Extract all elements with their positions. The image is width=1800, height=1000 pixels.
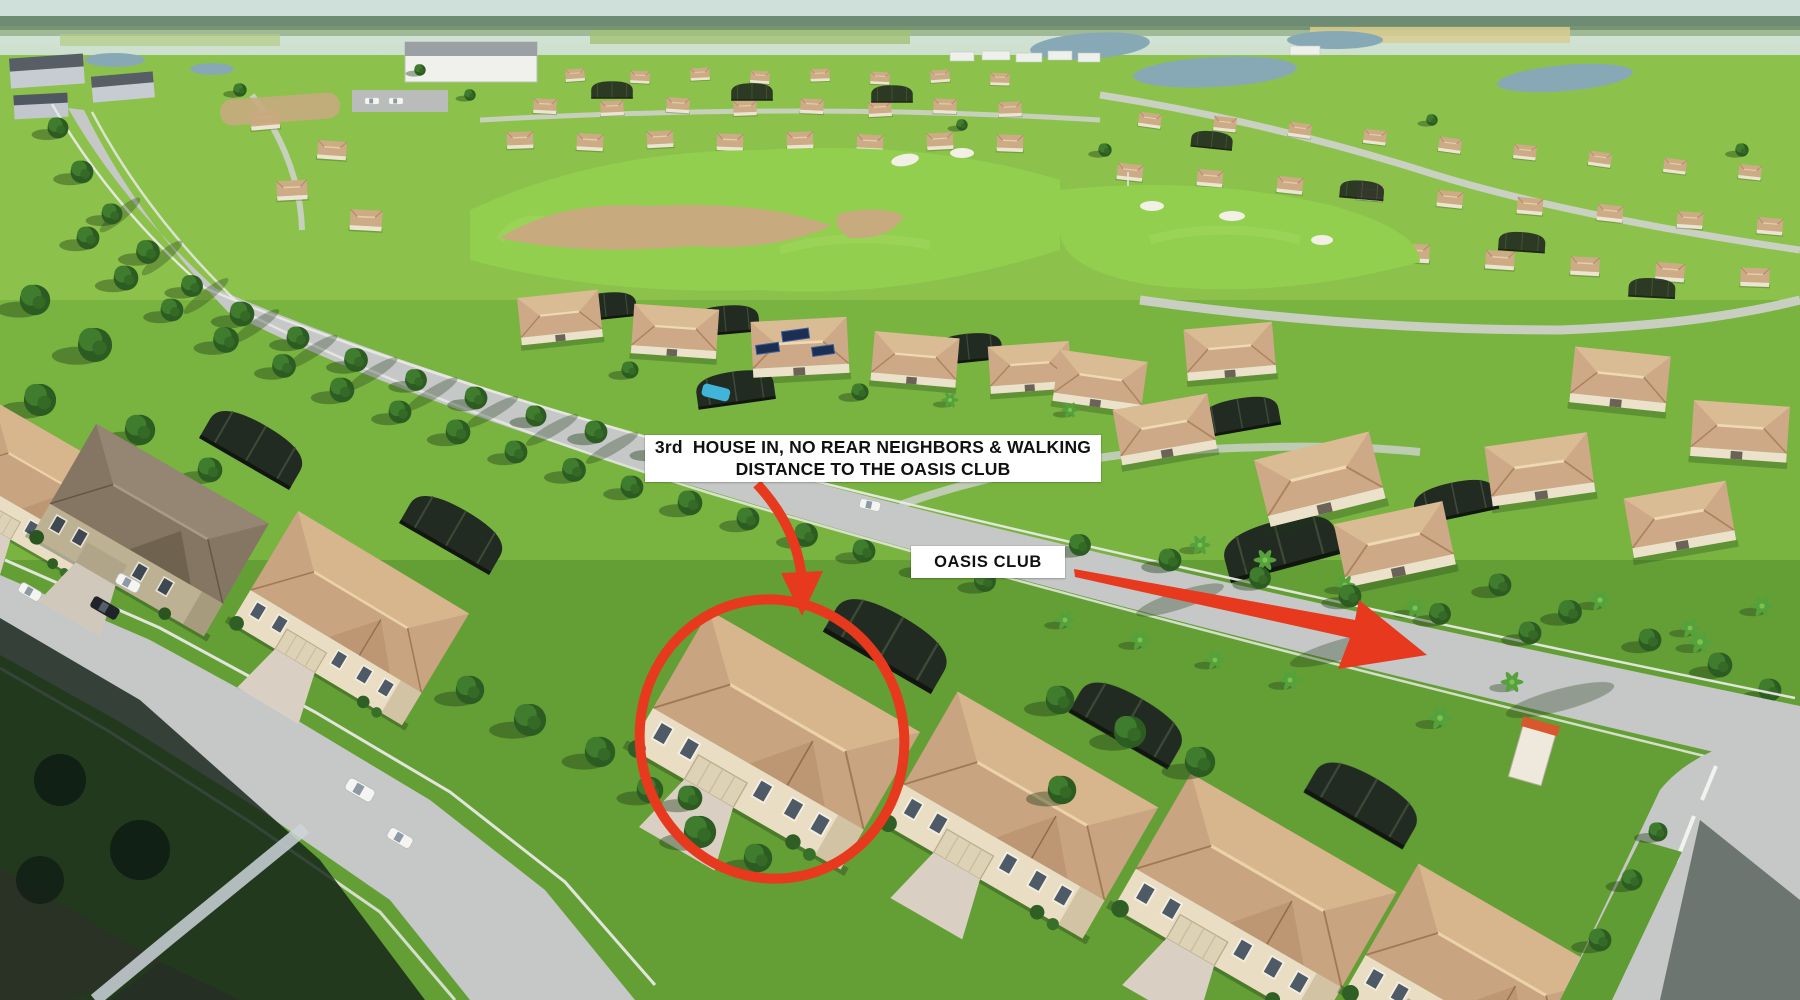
aerial-listing-photo: 3rd HOUSE IN, NO REAR NEIGHBORS & WALKIN… [0, 0, 1800, 1000]
aerial-scene [0, 0, 1800, 1000]
solar-panel-house [749, 317, 851, 384]
road-label-oasis-club: OASIS CLUB [911, 546, 1065, 578]
callout-label: 3rd HOUSE IN, NO REAR NEIGHBORS & WALKIN… [645, 435, 1101, 482]
callout-line2: DISTANCE TO THE OASIS CLUB [736, 459, 1011, 481]
callout-line1: 3rd HOUSE IN, NO REAR NEIGHBORS & WALKIN… [655, 437, 1091, 459]
